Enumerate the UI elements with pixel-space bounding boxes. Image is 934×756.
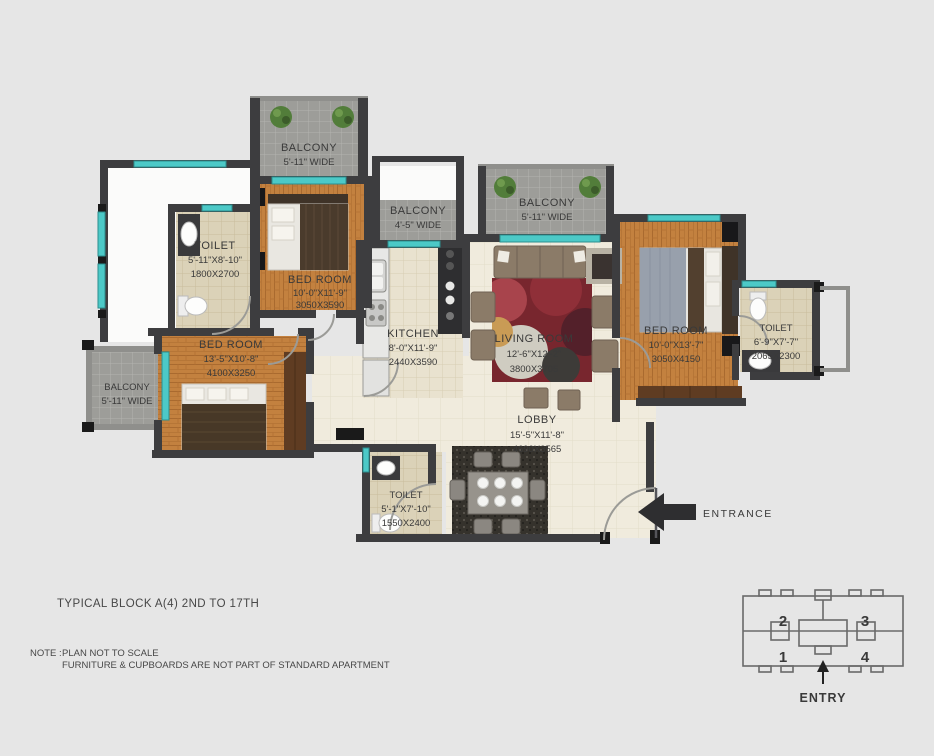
- block-title: TYPICAL BLOCK A(4) 2ND TO 17TH: [57, 598, 259, 610]
- floor-plan-page: BALCONY 5'-11" WIDE TOILET 5'-11"X8'-10"…: [0, 0, 934, 756]
- toilet-right-name: TOILET: [759, 323, 792, 334]
- entrance-label: ENTRANCE: [703, 508, 773, 520]
- kitchen-size-ft: 8'-0"X11'-9": [389, 343, 438, 354]
- plant-icon: [579, 176, 601, 198]
- toilet-top-name: TOILET: [194, 240, 235, 252]
- key-plan-unit-2: 2: [779, 613, 787, 630]
- bedroom-left-size-mm: 4100X3250: [207, 368, 256, 379]
- balcony-top-width: 5'-11" WIDE: [284, 157, 335, 168]
- bedroom-top-name: BED ROOM: [288, 274, 352, 286]
- plant-icon: [332, 106, 354, 128]
- living-room-name: LIVING ROOM: [495, 333, 574, 345]
- toilet-right-size-mm: 2065X2300: [752, 351, 801, 362]
- balcony-left-width: 5'-11" WIDE: [102, 396, 153, 407]
- balcony-kitchen-name: BALCONY: [390, 205, 446, 217]
- key-plan-unit-3: 3: [861, 613, 869, 630]
- toilet-top-size-mm: 1800X2700: [191, 269, 240, 280]
- floor-plan-canvas: BALCONY 5'-11" WIDE TOILET 5'-11"X8'-10"…: [0, 0, 934, 756]
- key-plan-unit-1: 1: [779, 649, 787, 666]
- bedroom-left-name: BED ROOM: [199, 339, 263, 351]
- bedroom-right-name: BED ROOM: [644, 325, 708, 337]
- bedroom-left-size-ft: 13'-5"X10'-8": [204, 354, 259, 365]
- toilet-bottom-name: TOILET: [389, 490, 422, 501]
- note-label: NOTE :: [30, 648, 62, 659]
- bedroom-top-size-mm: 3050X3590: [296, 300, 345, 311]
- toilet-bottom-size-ft: 5'-1"X7'-10": [381, 504, 430, 515]
- lobby-size-ft: 15'-5"X11'-8": [510, 430, 564, 441]
- balcony-top: [250, 96, 368, 181]
- living-room-size-ft: 12'-6"X12'-2": [507, 349, 562, 360]
- lobby-size-mm: 4690X3565: [513, 444, 562, 455]
- balcony-kitchen-width: 4'-5" WIDE: [395, 220, 441, 231]
- toilet-top-size-ft: 5'-11"X8'-10": [188, 255, 242, 266]
- dining-set: [450, 446, 548, 538]
- bedroom-right-size-mm: 3050X4150: [652, 354, 701, 365]
- lobby-name: LOBBY: [517, 414, 556, 426]
- balcony-living-width: 5'-11" WIDE: [522, 212, 573, 223]
- entry-label: ENTRY: [800, 691, 847, 705]
- toilet-bottom-size-mm: 1550X2400: [382, 518, 431, 529]
- kitchen-size-mm: 2440X3590: [389, 357, 438, 368]
- plant-icon: [270, 106, 292, 128]
- balcony-top-name: BALCONY: [281, 142, 337, 154]
- note-line2: FURNITURE & CUPBOARDS ARE NOT PART OF ST…: [62, 660, 390, 671]
- living-room-size-mm: 3800X3705: [510, 364, 559, 375]
- key-plan-unit-4: 4: [861, 649, 870, 666]
- balcony-living-name: BALCONY: [519, 197, 575, 209]
- note-line1: PLAN NOT TO SCALE: [62, 648, 159, 659]
- kitchen-name: KITCHEN: [387, 328, 439, 340]
- toilet-right-size-ft: 6'-9"X7'-7": [754, 337, 798, 348]
- bedroom-top-size-ft: 10'-0"X11'-9": [293, 288, 347, 299]
- bedroom-right-size-ft: 10'-0"X13'-7": [649, 340, 704, 351]
- plant-icon: [494, 176, 516, 198]
- balcony-left-name: BALCONY: [104, 382, 150, 393]
